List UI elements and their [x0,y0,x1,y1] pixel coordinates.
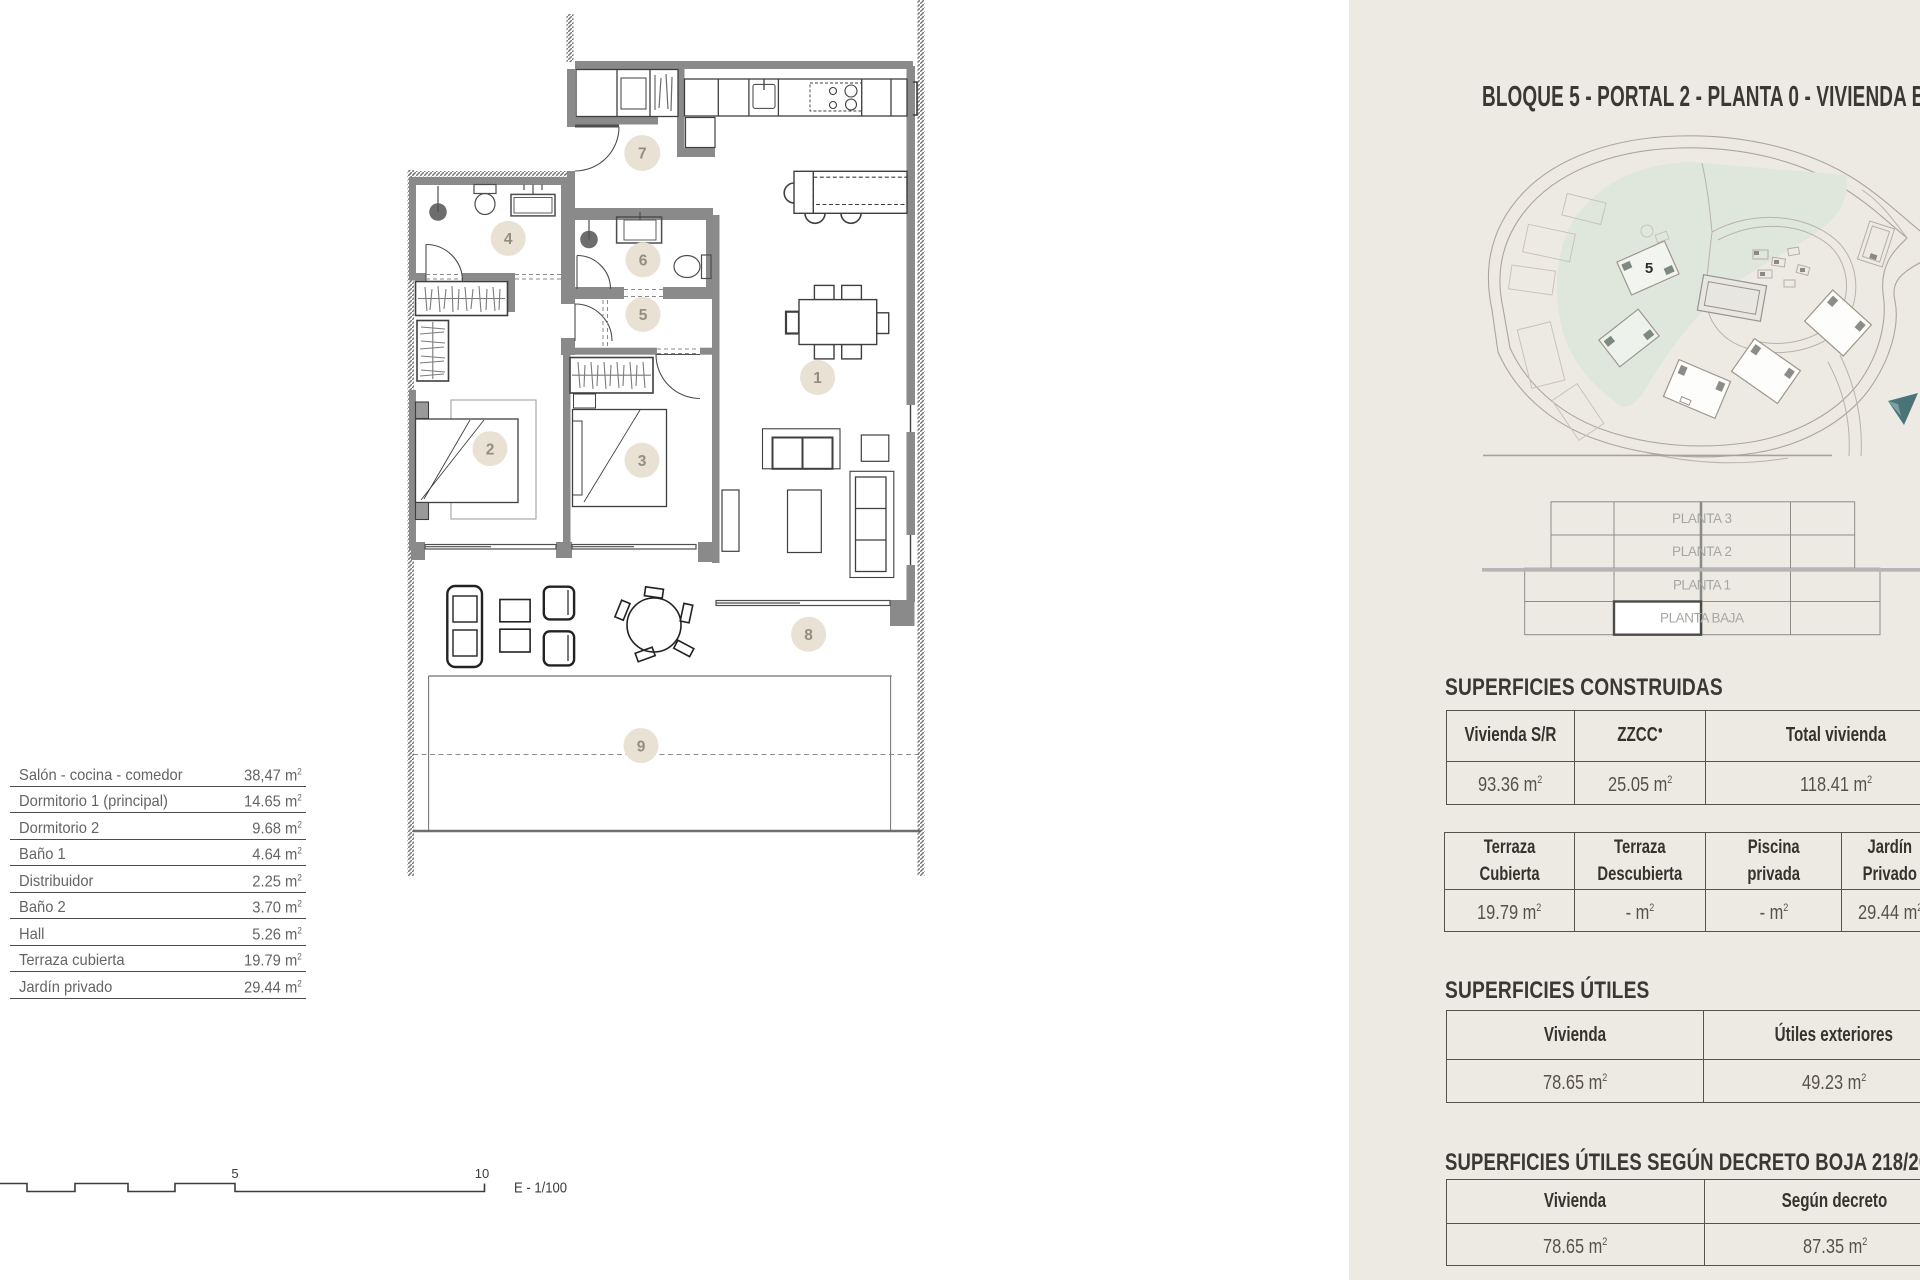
svg-text:1: 1 [813,370,822,387]
svg-text:PLANTA BAJA: PLANTA BAJA [1660,611,1744,626]
svg-text:10: 10 [475,1166,489,1181]
svg-text:2: 2 [486,441,495,458]
svg-text:9: 9 [637,738,646,755]
svg-text:7: 7 [638,146,647,163]
svg-text:5: 5 [1645,260,1653,277]
svg-text:8: 8 [804,627,813,644]
svg-text:E - 1/100: E - 1/100 [514,1181,567,1197]
svg-text:PLANTA 3: PLANTA 3 [1672,511,1732,526]
svg-text:4: 4 [504,231,513,248]
svg-text:5: 5 [231,1166,238,1181]
svg-text:3: 3 [638,453,647,470]
svg-text:PLANTA 2: PLANTA 2 [1672,544,1732,559]
svg-text:PLANTA 1: PLANTA 1 [1673,578,1731,593]
svg-text:6: 6 [639,253,648,270]
svg-text:5: 5 [639,307,648,324]
